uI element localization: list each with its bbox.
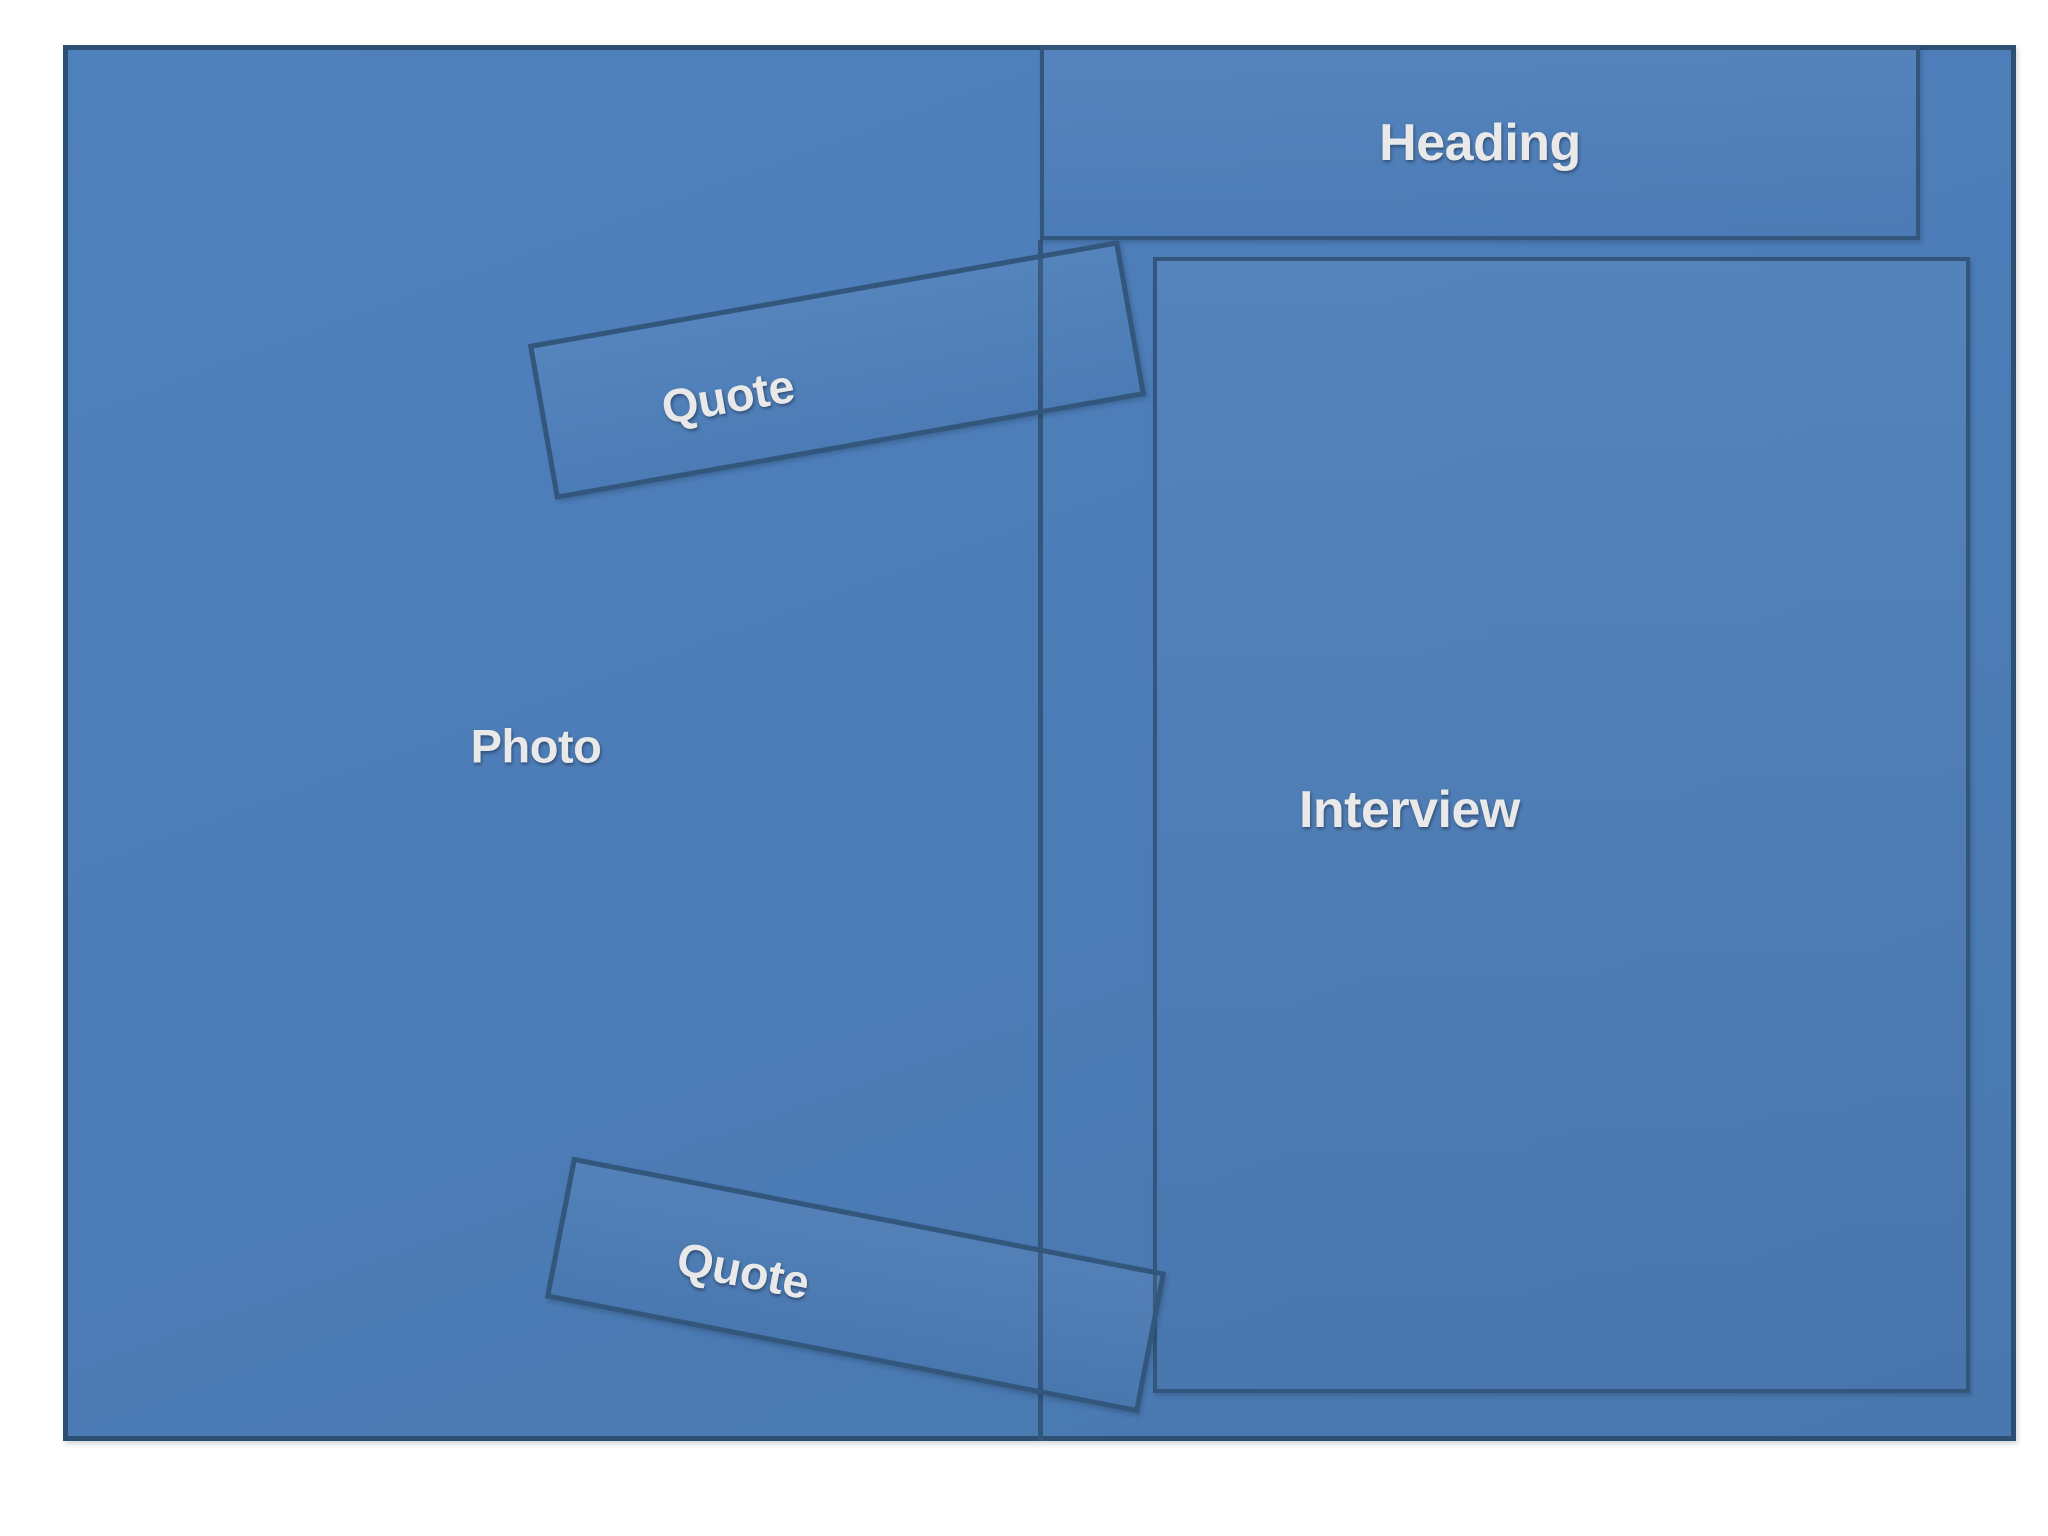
heading-box: Heading — [1040, 45, 1920, 240]
heading-label: Heading — [1379, 113, 1581, 173]
interview-box: Interview — [1153, 257, 1970, 1393]
quote-bottom-label: Quote — [673, 1230, 814, 1309]
interview-label: Interview — [1299, 780, 1520, 840]
slide-page: Photo Heading Interview Quote Quote — [0, 0, 2048, 1536]
photo-region-label: Photo — [471, 719, 602, 774]
quote-top-label: Quote — [657, 358, 798, 435]
